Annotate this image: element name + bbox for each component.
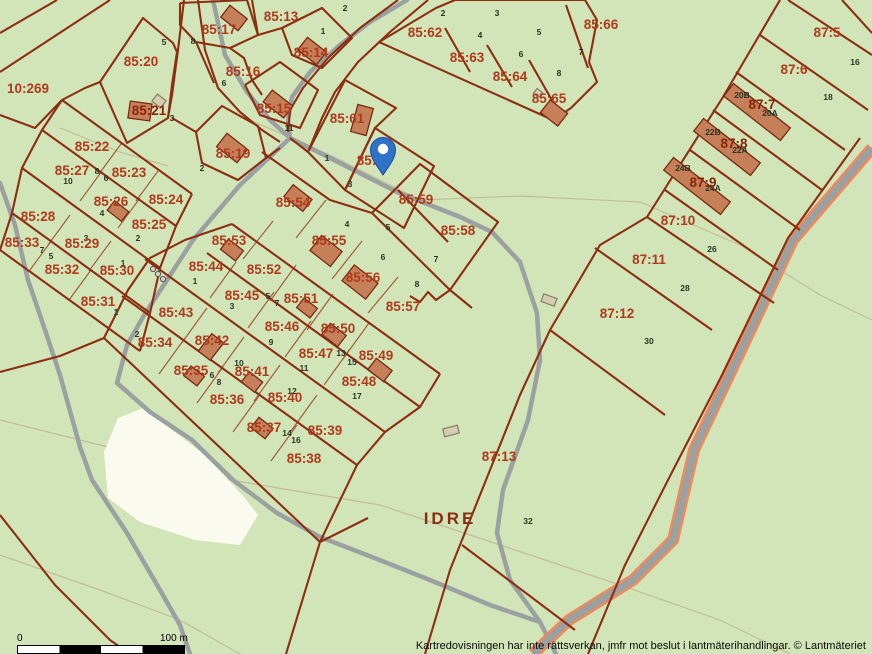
house-number: 5 <box>266 291 271 301</box>
parcel-label: 85:25 <box>132 217 167 232</box>
parcel-label: 85:38 <box>287 451 322 466</box>
parcel-label: 85:66 <box>584 17 619 32</box>
parcel-label: 85:47 <box>299 346 334 361</box>
house-number: 11 <box>285 123 294 133</box>
parcel-label: 87:12 <box>600 306 635 321</box>
house-number: 7 <box>579 47 584 57</box>
house-number: 7 <box>275 298 280 308</box>
house-number: 17 <box>352 391 362 401</box>
gate-marker <box>150 266 155 271</box>
house-number: 28 <box>680 283 690 293</box>
parcel-label: 85:51 <box>284 291 319 306</box>
parcel-label: 85:14 <box>294 45 329 60</box>
parcel-label: 85:22 <box>75 139 110 154</box>
parcel-label: 85:33 <box>5 235 40 250</box>
house-number: 7 <box>434 254 439 264</box>
house-number: 26 <box>707 244 717 254</box>
parcel-label: 87:10 <box>661 213 696 228</box>
house-number: 2 <box>441 8 446 18</box>
house-number: 8 <box>415 279 420 289</box>
gate-marker <box>155 271 160 276</box>
house-number: 4 <box>100 208 105 218</box>
parcel-label: 85:26 <box>94 194 129 209</box>
house-number: 8 <box>557 68 562 78</box>
house-number: 16 <box>291 435 301 445</box>
parcel-label: 87:5 <box>813 25 841 40</box>
house-number: 2 <box>200 163 205 173</box>
parcel-label: 87:8 <box>720 136 748 151</box>
parcel-label: 85:48 <box>342 374 377 389</box>
parcel-label: 85:62 <box>408 25 443 40</box>
scale-end-label: 100 m <box>160 633 188 644</box>
parcel-label: 85:56 <box>346 270 381 285</box>
house-number: 6 <box>210 370 215 380</box>
house-number: 8 <box>191 36 196 46</box>
house-number: 16 <box>850 57 860 67</box>
parcel-label: 85:16 <box>226 64 261 79</box>
parcel-label: 85:63 <box>450 50 485 65</box>
attribution-text: Kartredovisningen har inte rättsverkan, … <box>416 640 866 652</box>
map-canvas[interactable]: 5863112112234567886104237511134567857391… <box>0 0 872 654</box>
parcel-label: 87:7 <box>748 97 775 112</box>
parcel-label: 85:34 <box>138 335 173 350</box>
house-number: 4 <box>478 30 483 40</box>
house-number: 13 <box>336 348 346 358</box>
parcel-label: 85:52 <box>247 262 282 277</box>
house-number: 9 <box>269 337 274 347</box>
house-number: 11 <box>300 363 309 373</box>
house-number: 32 <box>523 516 533 526</box>
parcel-label: 85:44 <box>189 259 224 274</box>
house-number: 20B <box>734 90 750 100</box>
house-number: 3 <box>348 179 353 189</box>
parcel-label: 85:49 <box>359 348 394 363</box>
parcel-label: 85:32 <box>45 262 80 277</box>
parcel-label: 85:43 <box>159 305 194 320</box>
parcel-label: 85:15 <box>257 101 292 116</box>
parcel-label: 85:57 <box>386 299 421 314</box>
parcel-label: 85:20 <box>124 54 159 69</box>
parcel-label: 85:29 <box>65 236 100 251</box>
parcel-label: 85:31 <box>81 294 116 309</box>
parcel-label: 85:53 <box>212 233 247 248</box>
house-number: 6 <box>519 49 524 59</box>
house-number: 1 <box>193 276 198 286</box>
parcel-label: 85:39 <box>308 423 343 438</box>
house-number: 22B <box>705 127 721 137</box>
house-number: 7 <box>40 245 45 255</box>
house-number: 6 <box>381 252 386 262</box>
parcel-label: 85:61 <box>330 111 365 126</box>
parcel-label: 87:6 <box>780 62 808 77</box>
parcel-label: 85:42 <box>195 333 230 348</box>
parcel-label: 85:50 <box>321 321 356 336</box>
parcel-label: 87:9 <box>689 175 716 190</box>
scale-bar-graphic <box>17 645 185 654</box>
parcel-label: 85:13 <box>264 9 299 24</box>
parcel-label: 85:64 <box>493 69 528 84</box>
house-number: 18 <box>823 92 833 102</box>
parcel-label: 85:65 <box>532 91 567 106</box>
place-name-label: IDRE <box>424 509 477 528</box>
scale-bar: 0 100 m <box>17 633 197 654</box>
parcel-label: 85:35 <box>174 363 209 378</box>
parcel-label: 85:40 <box>268 390 303 405</box>
house-number: 6 <box>222 78 227 88</box>
house-number: 6 <box>104 173 109 183</box>
parcel-label: 85:28 <box>21 209 56 224</box>
parcel-label: 85:17 <box>202 22 237 37</box>
parcel-label: 85:21 <box>132 103 167 118</box>
house-number: 8 <box>217 377 222 387</box>
house-number: 1 <box>321 26 326 36</box>
parcel-label: 85:45 <box>225 288 260 303</box>
house-number: 24B <box>675 163 691 173</box>
parcel-label: 85:37 <box>247 420 282 435</box>
map-viewport[interactable]: 5863112112234567886104237511134567857391… <box>0 0 872 654</box>
parcel-label: 85:46 <box>265 319 300 334</box>
house-number: 1 <box>325 153 330 163</box>
parcel-label: 85:58 <box>441 223 476 238</box>
house-number: 30 <box>644 336 654 346</box>
parcel-label: 85:30 <box>100 263 135 278</box>
house-number: 5 <box>386 222 391 232</box>
house-number: 15 <box>347 357 357 367</box>
parcel-label: 85:24 <box>149 192 184 207</box>
scale-zero-label: 0 <box>17 633 23 644</box>
parcel-label: 87:11 <box>632 252 666 267</box>
parcel-label: 85:23 <box>112 165 147 180</box>
house-number: 3 <box>495 8 500 18</box>
house-number: 4 <box>345 219 350 229</box>
parcel-label: 10:269 <box>7 81 49 96</box>
house-number: 5 <box>537 27 542 37</box>
parcel-label: 85:41 <box>235 364 270 379</box>
house-number: 8 <box>95 166 100 176</box>
house-number: 2 <box>343 3 348 13</box>
parcel-label: 85:54 <box>276 195 311 210</box>
parcel-label: 85:27 <box>55 163 90 178</box>
parcel-label: 87:13 <box>482 449 517 464</box>
parcel-label: 85:19 <box>216 146 251 161</box>
parcel-label: 85:55 <box>312 233 347 248</box>
pin-center-dot <box>378 144 388 154</box>
house-number: 3 <box>170 113 175 123</box>
house-number: 5 <box>162 37 167 47</box>
parcel-label: 85:36 <box>210 392 245 407</box>
house-number: 5 <box>49 251 54 261</box>
gate-marker <box>160 276 165 281</box>
house-number: 2 <box>136 233 141 243</box>
parcel-label: 85:59 <box>399 192 434 207</box>
